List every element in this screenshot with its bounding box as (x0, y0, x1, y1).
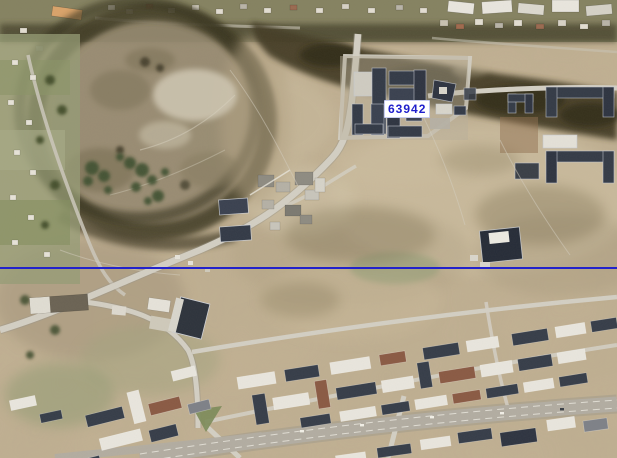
parcel-label[interactable]: 63942 (384, 100, 430, 118)
aerial-imagery (0, 0, 617, 458)
reference-line (0, 267, 617, 269)
grain-overlay (0, 0, 617, 458)
map-canvas[interactable]: 63942 (0, 0, 617, 458)
